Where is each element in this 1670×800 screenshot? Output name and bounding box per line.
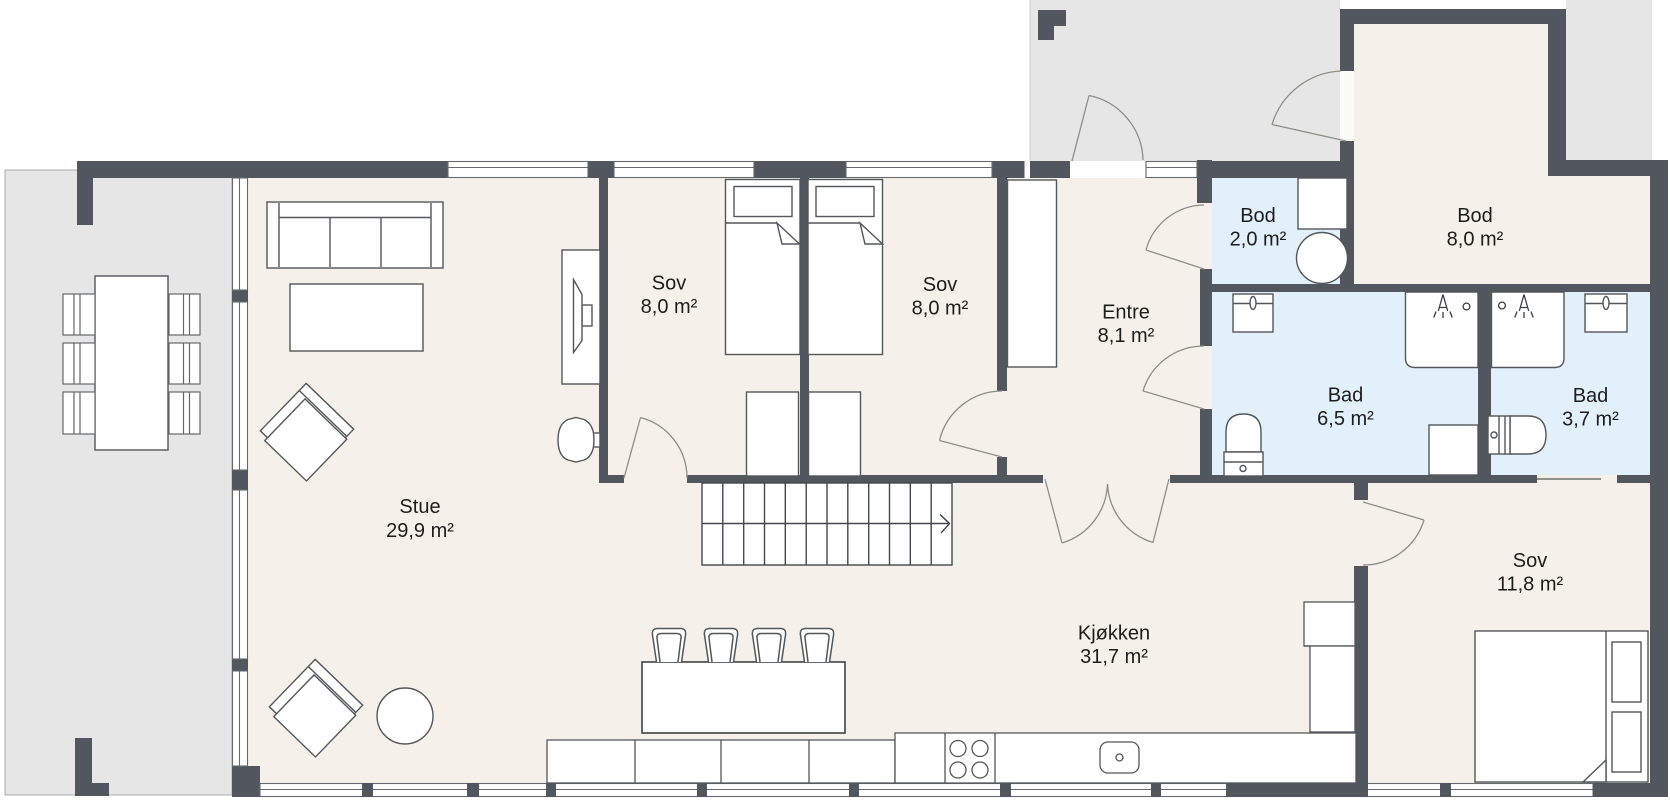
- svg-text:Sov: Sov: [923, 274, 957, 296]
- svg-text:8,0 m²: 8,0 m²: [1447, 229, 1504, 251]
- svg-text:Bod: Bod: [1457, 205, 1493, 227]
- svg-text:31,7 m²: 31,7 m²: [1080, 646, 1148, 668]
- svg-text:11,8 m²: 11,8 m²: [1497, 574, 1564, 596]
- svg-text:Stue: Stue: [399, 496, 440, 518]
- svg-text:Bod: Bod: [1240, 205, 1276, 227]
- svg-text:2,0 m²: 2,0 m²: [1230, 229, 1287, 251]
- svg-text:Bad: Bad: [1573, 385, 1609, 407]
- svg-text:8,1 m²: 8,1 m²: [1098, 325, 1155, 347]
- svg-text:8,0 m²: 8,0 m²: [912, 298, 969, 320]
- svg-text:Sov: Sov: [652, 273, 686, 295]
- svg-text:8,0 m²: 8,0 m²: [641, 296, 698, 318]
- svg-text:29,9 m²: 29,9 m²: [386, 520, 454, 542]
- svg-text:Kjøkken: Kjøkken: [1078, 623, 1150, 645]
- svg-text:Entre: Entre: [1102, 302, 1150, 324]
- svg-text:3,7 m²: 3,7 m²: [1562, 409, 1619, 431]
- svg-text:6,5 m²: 6,5 m²: [1317, 408, 1374, 430]
- svg-text:Bad: Bad: [1328, 385, 1364, 407]
- svg-text:Sov: Sov: [1513, 550, 1547, 572]
